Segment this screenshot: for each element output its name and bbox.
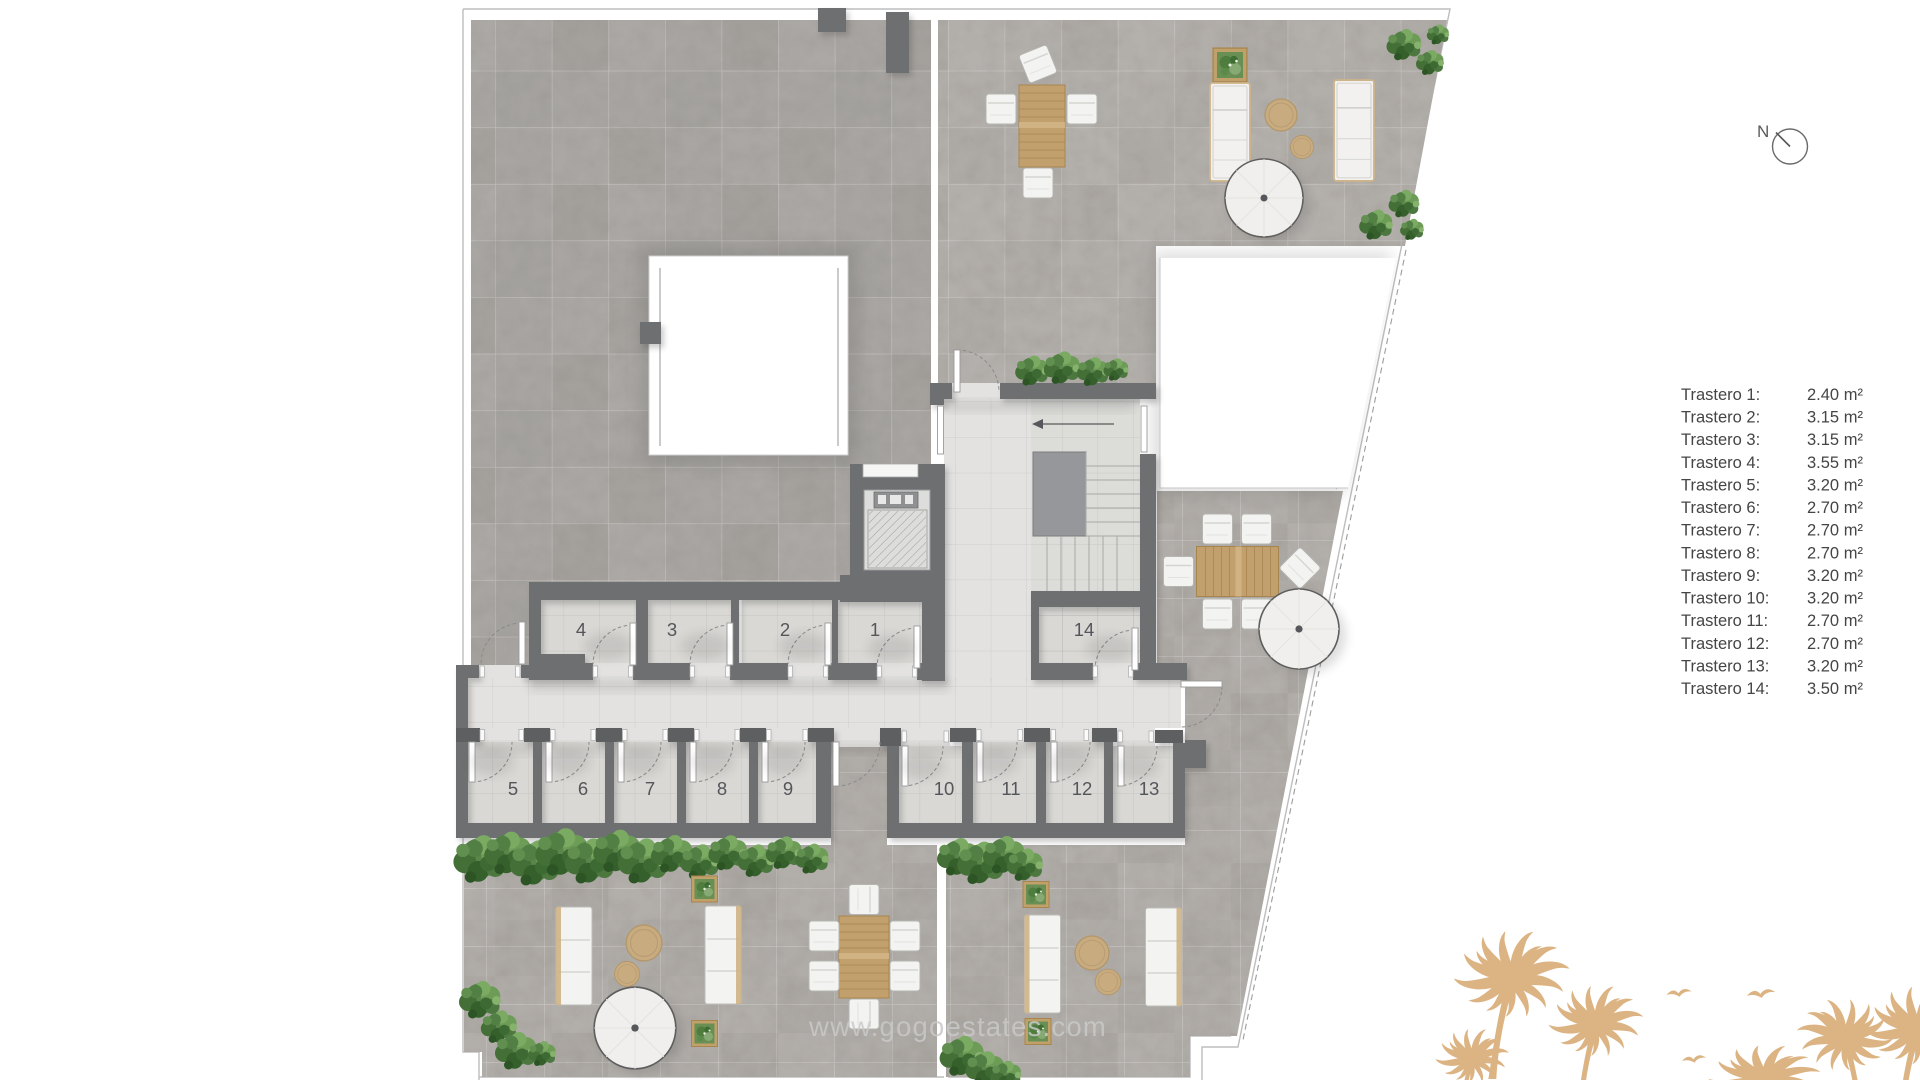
svg-text:3.20 m²: 3.20 m²: [1807, 477, 1863, 495]
svg-text:Trastero 9:: Trastero 9:: [1681, 567, 1760, 585]
svg-text:8: 8: [717, 778, 727, 799]
svg-text:Trastero 11:: Trastero 11:: [1681, 612, 1768, 630]
svg-text:12: 12: [1072, 778, 1093, 799]
svg-text:3.55 m²: 3.55 m²: [1807, 454, 1863, 472]
svg-text:Trastero 14:: Trastero 14:: [1681, 680, 1769, 698]
svg-text:2.70 m²: 2.70 m²: [1807, 635, 1863, 653]
svg-text:7: 7: [645, 778, 655, 799]
svg-text:2.70 m²: 2.70 m²: [1807, 499, 1863, 517]
svg-text:2.40 m²: 2.40 m²: [1807, 386, 1863, 404]
svg-text:Trastero 6:: Trastero 6:: [1681, 499, 1760, 517]
svg-text:13: 13: [1139, 778, 1160, 799]
svg-text:14: 14: [1074, 619, 1095, 640]
svg-text:3.50 m²: 3.50 m²: [1807, 680, 1863, 698]
svg-text:Trastero 12:: Trastero 12:: [1681, 635, 1769, 653]
svg-text:2.70 m²: 2.70 m²: [1807, 544, 1863, 562]
svg-text:5: 5: [508, 778, 518, 799]
svg-text:11: 11: [1001, 778, 1020, 799]
svg-text:2.70 m²: 2.70 m²: [1807, 612, 1863, 630]
svg-text:2: 2: [780, 619, 790, 640]
svg-text:Trastero 4:: Trastero 4:: [1681, 454, 1760, 472]
svg-text:Trastero 13:: Trastero 13:: [1681, 657, 1769, 675]
svg-text:6: 6: [578, 778, 588, 799]
svg-text:4: 4: [576, 619, 586, 640]
svg-text:Trastero 2:: Trastero 2:: [1681, 409, 1760, 427]
svg-text:Trastero 3:: Trastero 3:: [1681, 431, 1760, 449]
svg-text:10: 10: [934, 778, 955, 799]
svg-text:www.gogoestates.com: www.gogoestates.com: [808, 1011, 1107, 1042]
svg-text:Trastero 1:: Trastero 1:: [1681, 386, 1760, 404]
svg-text:9: 9: [783, 778, 793, 799]
svg-text:3: 3: [667, 619, 677, 640]
svg-text:3.20 m²: 3.20 m²: [1807, 567, 1863, 585]
svg-text:3.20 m²: 3.20 m²: [1807, 590, 1863, 608]
svg-text:3.20 m²: 3.20 m²: [1807, 657, 1863, 675]
svg-text:Trastero 5:: Trastero 5:: [1681, 477, 1760, 495]
svg-text:3.15 m²: 3.15 m²: [1807, 409, 1863, 427]
svg-text:1: 1: [870, 619, 880, 640]
svg-text:Trastero 10:: Trastero 10:: [1681, 590, 1769, 608]
svg-text:Trastero 8:: Trastero 8:: [1681, 544, 1760, 562]
svg-text:2.70 m²: 2.70 m²: [1807, 522, 1863, 540]
svg-text:Trastero 7:: Trastero 7:: [1681, 522, 1760, 540]
svg-text:3.15 m²: 3.15 m²: [1807, 431, 1863, 449]
svg-text:N: N: [1757, 122, 1769, 141]
